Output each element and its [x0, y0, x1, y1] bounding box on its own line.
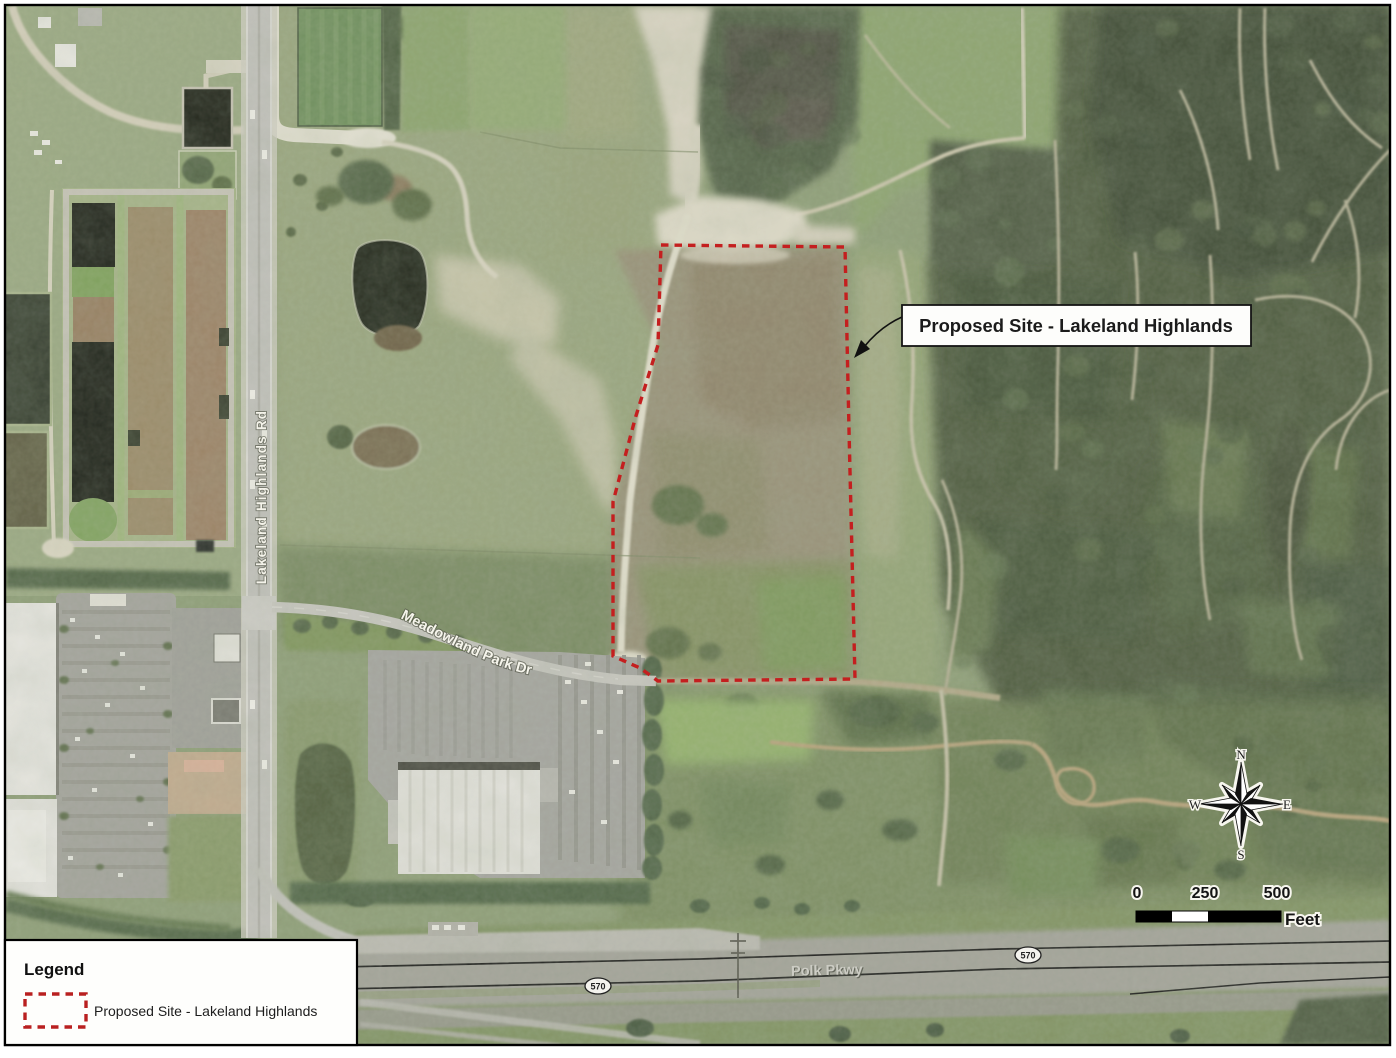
svg-text:Lakeland Highlands Rd: Lakeland Highlands Rd — [254, 410, 269, 584]
svg-text:N: N — [1236, 747, 1246, 762]
svg-text:570: 570 — [590, 982, 605, 992]
svg-text:Feet: Feet — [1285, 910, 1320, 929]
svg-text:250: 250 — [1192, 885, 1219, 902]
svg-text:500: 500 — [1264, 885, 1291, 902]
svg-text:W: W — [1189, 797, 1202, 812]
svg-text:E: E — [1283, 797, 1291, 812]
svg-text:Legend: Legend — [24, 960, 84, 979]
svg-text:570: 570 — [1020, 951, 1035, 961]
svg-text:Polk Pkwy: Polk Pkwy — [791, 962, 863, 980]
svg-text:0: 0 — [1133, 885, 1142, 902]
svg-text:S: S — [1237, 847, 1244, 862]
svg-text:Proposed Site - Lakeland Highl: Proposed Site - Lakeland Highlands — [919, 315, 1233, 336]
svg-text:Proposed Site - Lakeland Highl: Proposed Site - Lakeland Highlands — [94, 1003, 317, 1019]
